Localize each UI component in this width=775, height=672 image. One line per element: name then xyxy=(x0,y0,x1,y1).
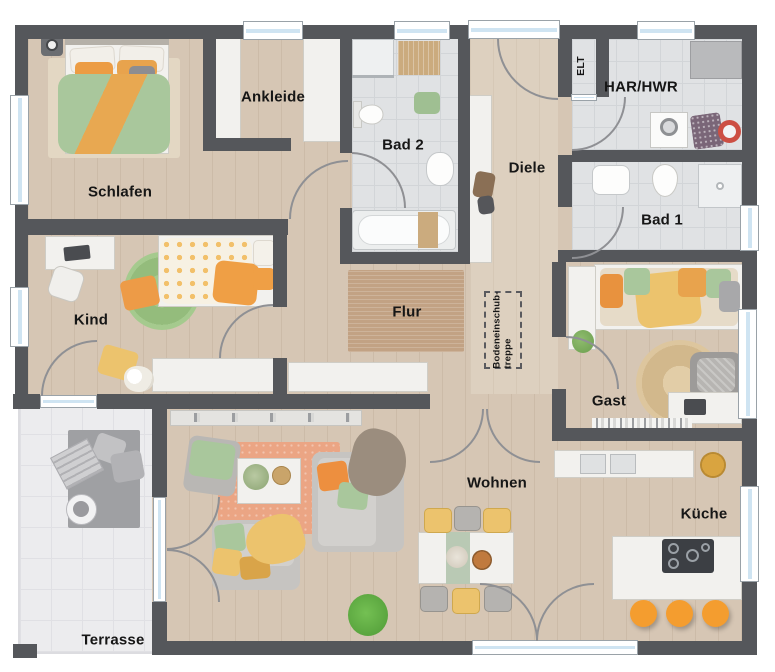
floor-plan: Schlafen Ankleide Bad 2 Diele ELT HAR/HW… xyxy=(0,0,775,672)
room-label-har: HAR/HWR xyxy=(604,79,678,96)
room-label-flur: Flur xyxy=(392,304,421,321)
room-label-diele: Diele xyxy=(509,160,546,177)
room-label-ankleide: Ankleide xyxy=(241,89,305,106)
room-label-bad2: Bad 2 xyxy=(382,137,424,154)
room-label-terrasse: Terrasse xyxy=(81,632,144,649)
room-label-wohnen: Wohnen xyxy=(467,475,527,492)
room-label-kueche: Küche xyxy=(681,506,728,523)
room-label-schlafen: Schlafen xyxy=(88,184,152,201)
label-attic-hatch: Bodeneinschub- treppe xyxy=(492,291,515,368)
attic-label-line2: treppe xyxy=(503,291,514,368)
room-label-elt: ELT xyxy=(575,56,587,76)
door-swing-arcs xyxy=(0,0,775,672)
room-label-bad1: Bad 1 xyxy=(641,212,683,229)
attic-label-line1: Bodeneinschub- xyxy=(492,291,503,368)
room-label-kind: Kind xyxy=(74,312,108,329)
room-label-gast: Gast xyxy=(592,393,626,410)
